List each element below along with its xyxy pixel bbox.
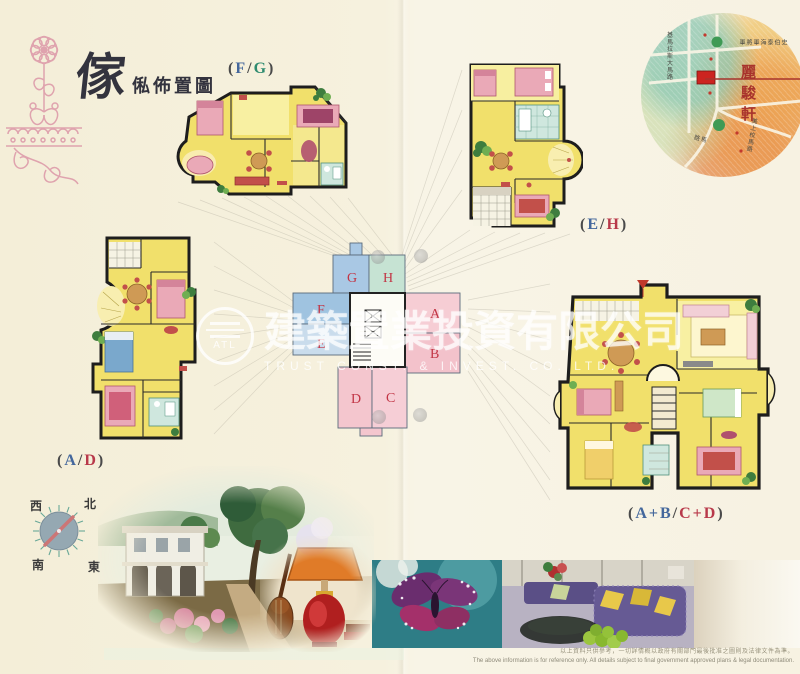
map-site-marker xyxy=(697,71,715,84)
disclaimer: 以上資料只供參考，一切詳情概以政府有關部門最後批准之圖則及法律文件為準。 The… xyxy=(364,648,794,665)
keyplan-letter-f: F xyxy=(317,303,325,318)
disclaimer-english: The above information is for reference o… xyxy=(364,657,794,665)
page-title-main-char: 傢 xyxy=(73,52,128,102)
map-roundabout-south xyxy=(713,119,725,131)
binding-dot xyxy=(414,249,428,263)
keyplan-letter-e: E xyxy=(317,337,326,352)
keyplan-letter-g: G xyxy=(347,271,357,286)
keyplan-letter-a: A xyxy=(430,307,441,322)
plan-fg-label-close: ) xyxy=(268,60,275,77)
floor-plan-eh xyxy=(457,55,583,233)
keyplan-letter-h: H xyxy=(383,271,393,286)
photo-right-fade xyxy=(694,560,800,648)
keyplan-letter-b: B xyxy=(430,347,439,362)
plan-fg-label: (F/G) xyxy=(228,60,275,78)
plan-abcd-label: (A+B/C+D) xyxy=(628,505,725,523)
plan-eh-label: (E/H) xyxy=(580,216,628,234)
photo-butterfly xyxy=(372,560,502,648)
compass-rose xyxy=(31,503,87,559)
disclaimer-chinese: 以上資料只供參考，一切詳情概以政府有關部門最後批准之圖則及法律文件為準。 xyxy=(364,648,794,657)
plan-fg-label-b: G xyxy=(254,60,268,77)
keyplan-bottom-protrusion xyxy=(360,428,382,436)
map-estate-name: 麗駿軒 xyxy=(741,61,758,124)
plan-abcd-right-bay xyxy=(768,373,775,405)
map-roundabout-north xyxy=(712,37,723,48)
photo-still-life xyxy=(260,536,376,652)
brochure-page: 傢 俬佈置圖 基馬拉斯大馬路 史伯泰海軍將軍 美上校馬路 馬路 麗駿軒 xyxy=(0,0,800,674)
colonial-building xyxy=(122,526,208,596)
plan-eh-label-b: H xyxy=(606,216,620,233)
plan-abcd-label-a: A+B xyxy=(635,505,672,522)
binding-dot xyxy=(372,410,386,424)
plan-abcd-label-close: ) xyxy=(717,505,724,522)
floor-plan-abcd xyxy=(551,277,779,503)
photo-living-room xyxy=(502,560,694,648)
plan-eh-label-close: ) xyxy=(621,216,628,233)
plan-abcd-left-bay xyxy=(554,391,560,419)
binding-dot xyxy=(413,408,427,422)
floor-plan-fg xyxy=(169,81,351,206)
floor-plan-ad xyxy=(81,232,213,444)
keyplan-letter-d: D xyxy=(351,392,361,407)
books xyxy=(344,624,370,640)
keyplan-top-protrusion xyxy=(350,243,362,255)
floral-ornament xyxy=(6,20,84,192)
binding-dot xyxy=(371,250,385,264)
keyplan-letter-c: C xyxy=(386,391,395,406)
plan-fg-label-a: F xyxy=(235,60,247,77)
map-street-top-label: 基馬拉斯大馬路 xyxy=(667,33,673,82)
plan-ad-label-a: A xyxy=(64,452,78,469)
map-streets xyxy=(641,13,800,177)
plan-abcd-label-b: C+D xyxy=(679,505,717,522)
map-street-vertical-label: 史伯泰海軍將軍 xyxy=(737,39,786,48)
plan-eh-label-a: E xyxy=(587,216,600,233)
plan-ad-label-b: D xyxy=(84,452,98,469)
